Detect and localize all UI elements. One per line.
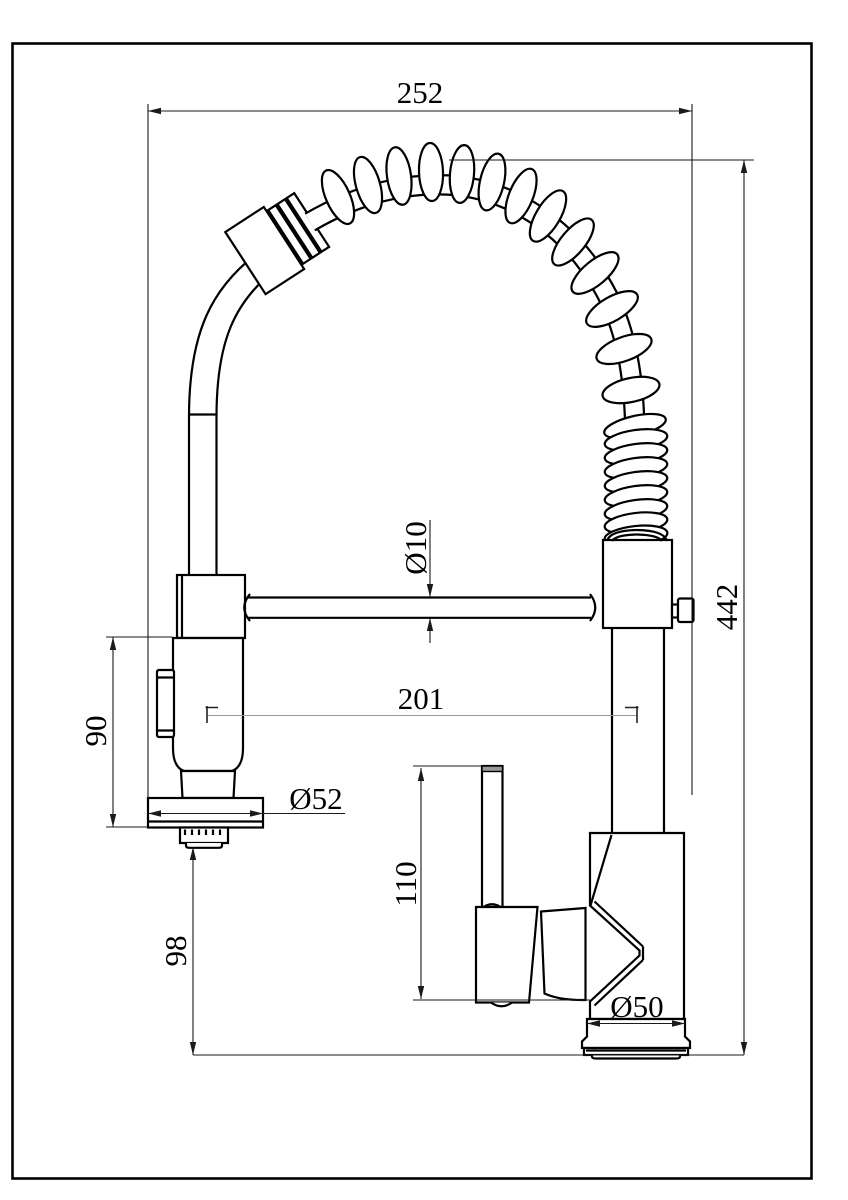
handle-grip	[476, 907, 538, 1003]
dim-handle-height-label: 110	[388, 861, 423, 906]
support-pipe	[244, 594, 595, 621]
dimension-90: 90	[78, 637, 116, 827]
spring-coil-tight	[602, 409, 669, 549]
handle	[476, 766, 586, 1006]
drawing-sheet: 252 442 Ø10 201 90	[0, 0, 848, 1200]
handle-rod-cap	[482, 766, 503, 772]
dim-top-width-label: 252	[397, 75, 444, 110]
sprayer-collar	[177, 575, 245, 638]
dim-base-diameter-label: Ø50	[610, 989, 663, 1024]
dimension-252: 252	[148, 75, 692, 114]
dimension-98: 98	[158, 847, 196, 1055]
sprayer-flare	[148, 798, 263, 828]
dim-hose-diameter-label: Ø10	[398, 521, 433, 574]
handle-joint	[541, 908, 586, 1000]
dimension-201: 201	[206, 681, 639, 723]
dim-center-distance-label: 201	[398, 681, 445, 716]
gooseneck-tube	[189, 252, 276, 575]
dim-spout-clearance-label: 98	[158, 936, 193, 967]
faucet-technical-drawing: 252 442 Ø10 201 90	[0, 0, 848, 1200]
sprayer-head	[148, 638, 263, 848]
spout-column	[612, 628, 664, 833]
spout-junction-block	[603, 530, 694, 628]
dimension-442: 442	[709, 160, 747, 1055]
dim-sprayer-height-label: 90	[78, 716, 113, 747]
dim-sprayer-head-diameter-label: Ø52	[289, 781, 342, 816]
dimension-110: 110	[388, 768, 424, 999]
dimension-d10: Ø10	[398, 520, 433, 643]
spring-coil	[315, 143, 662, 408]
sprayer-button	[157, 670, 174, 737]
dim-overall-height-label: 442	[709, 584, 744, 631]
hose-ferrule	[225, 189, 332, 294]
handle-lever-rod	[482, 766, 503, 907]
side-nut	[678, 599, 694, 623]
